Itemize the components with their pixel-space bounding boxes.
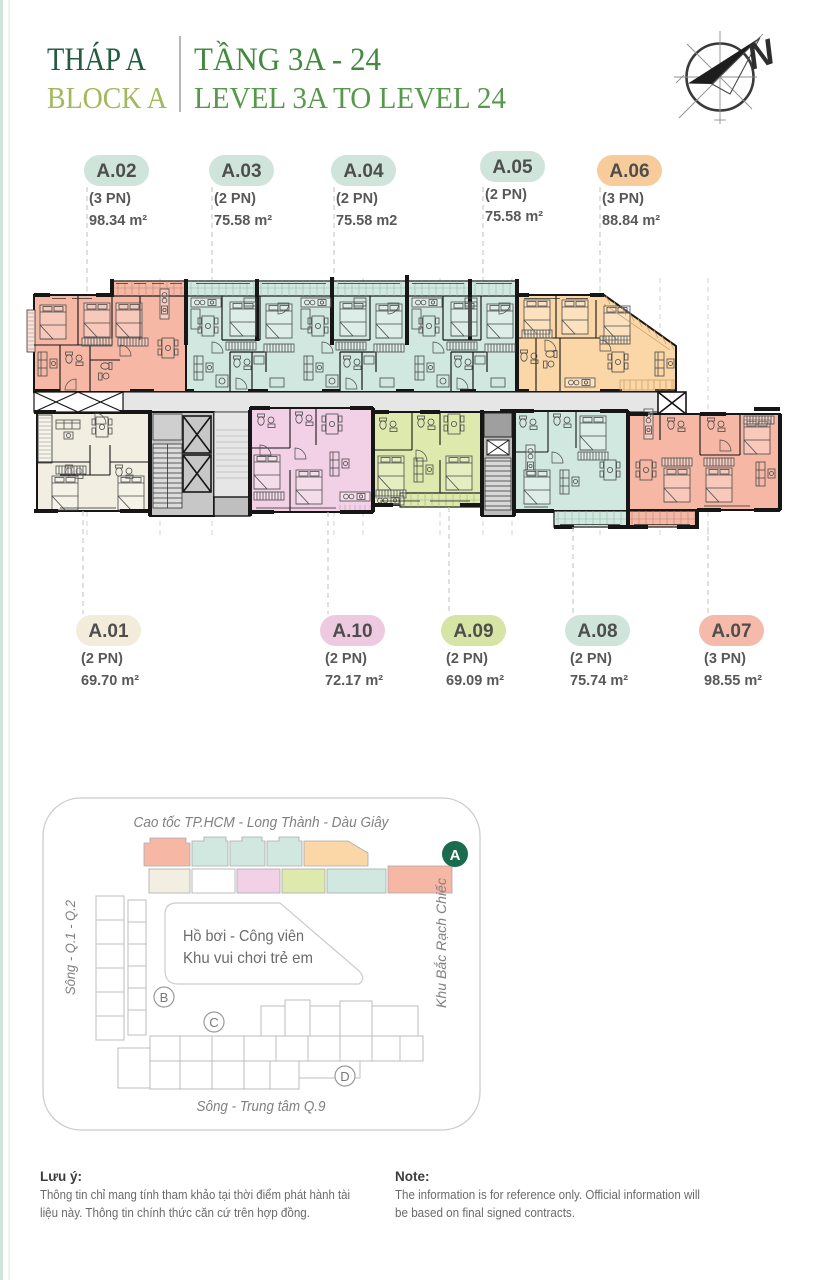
- svg-text:TẦNG 3A - 24: TẦNG 3A - 24: [194, 40, 381, 78]
- svg-text:A: A: [450, 847, 461, 864]
- svg-text:(2 PN): (2 PN): [325, 651, 367, 667]
- svg-text:A.02: A.02: [96, 161, 136, 182]
- svg-text:A.07: A.07: [711, 621, 751, 642]
- svg-text:C: C: [209, 1015, 218, 1030]
- svg-text:(3 PN): (3 PN): [89, 191, 131, 207]
- svg-text:D: D: [340, 1069, 349, 1084]
- svg-text:A.10: A.10: [332, 621, 372, 642]
- svg-text:Lưu ý:: Lưu ý:: [40, 1169, 82, 1184]
- svg-text:(2 PN): (2 PN): [570, 651, 612, 667]
- svg-text:88.84 m²: 88.84 m²: [602, 213, 660, 229]
- svg-text:THÁP A: THÁP A: [47, 41, 146, 78]
- svg-text:Sông - Trung tâm Q.9: Sông - Trung tâm Q.9: [197, 1098, 327, 1115]
- svg-text:A.06: A.06: [609, 161, 649, 182]
- svg-text:75.58 m2: 75.58 m2: [336, 213, 397, 229]
- svg-text:Khu vui chơi trẻ em: Khu vui chơi trẻ em: [183, 950, 313, 967]
- svg-text:(2 PN): (2 PN): [446, 651, 488, 667]
- svg-text:(2 PN): (2 PN): [336, 191, 378, 207]
- svg-text:Sông - Q.1 - Q.2: Sông - Q.1 - Q.2: [62, 900, 78, 995]
- svg-text:liệu này. Thông tin chính thức: liệu này. Thông tin chính thức căn cứ tr…: [40, 1206, 310, 1220]
- svg-text:The information is for referen: The information is for reference only. O…: [395, 1188, 700, 1202]
- svg-text:A.08: A.08: [577, 621, 617, 642]
- svg-text:72.17 m²: 72.17 m²: [325, 673, 383, 689]
- svg-text:69.09 m²: 69.09 m²: [446, 673, 504, 689]
- svg-text:A.04: A.04: [343, 161, 384, 182]
- svg-text:(2 PN): (2 PN): [81, 651, 123, 667]
- svg-text:be based on final signed contr: be based on final signed contracts.: [395, 1206, 575, 1220]
- svg-text:BLOCK A: BLOCK A: [47, 80, 168, 115]
- svg-text:LEVEL 3A TO LEVEL 24: LEVEL 3A TO LEVEL 24: [194, 80, 506, 115]
- svg-text:75.58 m²: 75.58 m²: [485, 209, 543, 225]
- svg-text:Thông tin chỉ mang tính tham k: Thông tin chỉ mang tính tham khảo tại th…: [40, 1188, 350, 1202]
- svg-text:(2 PN): (2 PN): [214, 191, 256, 207]
- svg-text:75.58 m²: 75.58 m²: [214, 213, 272, 229]
- svg-text:98.34 m²: 98.34 m²: [89, 213, 147, 229]
- svg-text:A.03: A.03: [221, 161, 261, 182]
- svg-text:Cao tốc TP.HCM - Long Thành -: Cao tốc TP.HCM - Long Thành - Dàu Giây: [134, 814, 390, 831]
- svg-text:75.74 m²: 75.74 m²: [570, 673, 628, 689]
- svg-text:A.09: A.09: [453, 621, 493, 642]
- svg-text:B: B: [160, 990, 169, 1005]
- svg-text:(3 PN): (3 PN): [602, 191, 644, 207]
- svg-text:Note:: Note:: [395, 1169, 430, 1184]
- svg-text:A.01: A.01: [88, 621, 129, 642]
- svg-text:(2 PN): (2 PN): [485, 187, 527, 203]
- svg-text:69.70 m²: 69.70 m²: [81, 673, 139, 689]
- svg-text:98.55 m²: 98.55 m²: [704, 673, 762, 689]
- svg-text:(3 PN): (3 PN): [704, 651, 746, 667]
- svg-text:Hồ bơi - Công viên: Hồ bơi - Công viên: [183, 928, 304, 945]
- svg-text:A.05: A.05: [492, 157, 533, 178]
- svg-text:Khu Bắc Rạch Chiếc: Khu Bắc Rạch Chiếc: [433, 878, 449, 1008]
